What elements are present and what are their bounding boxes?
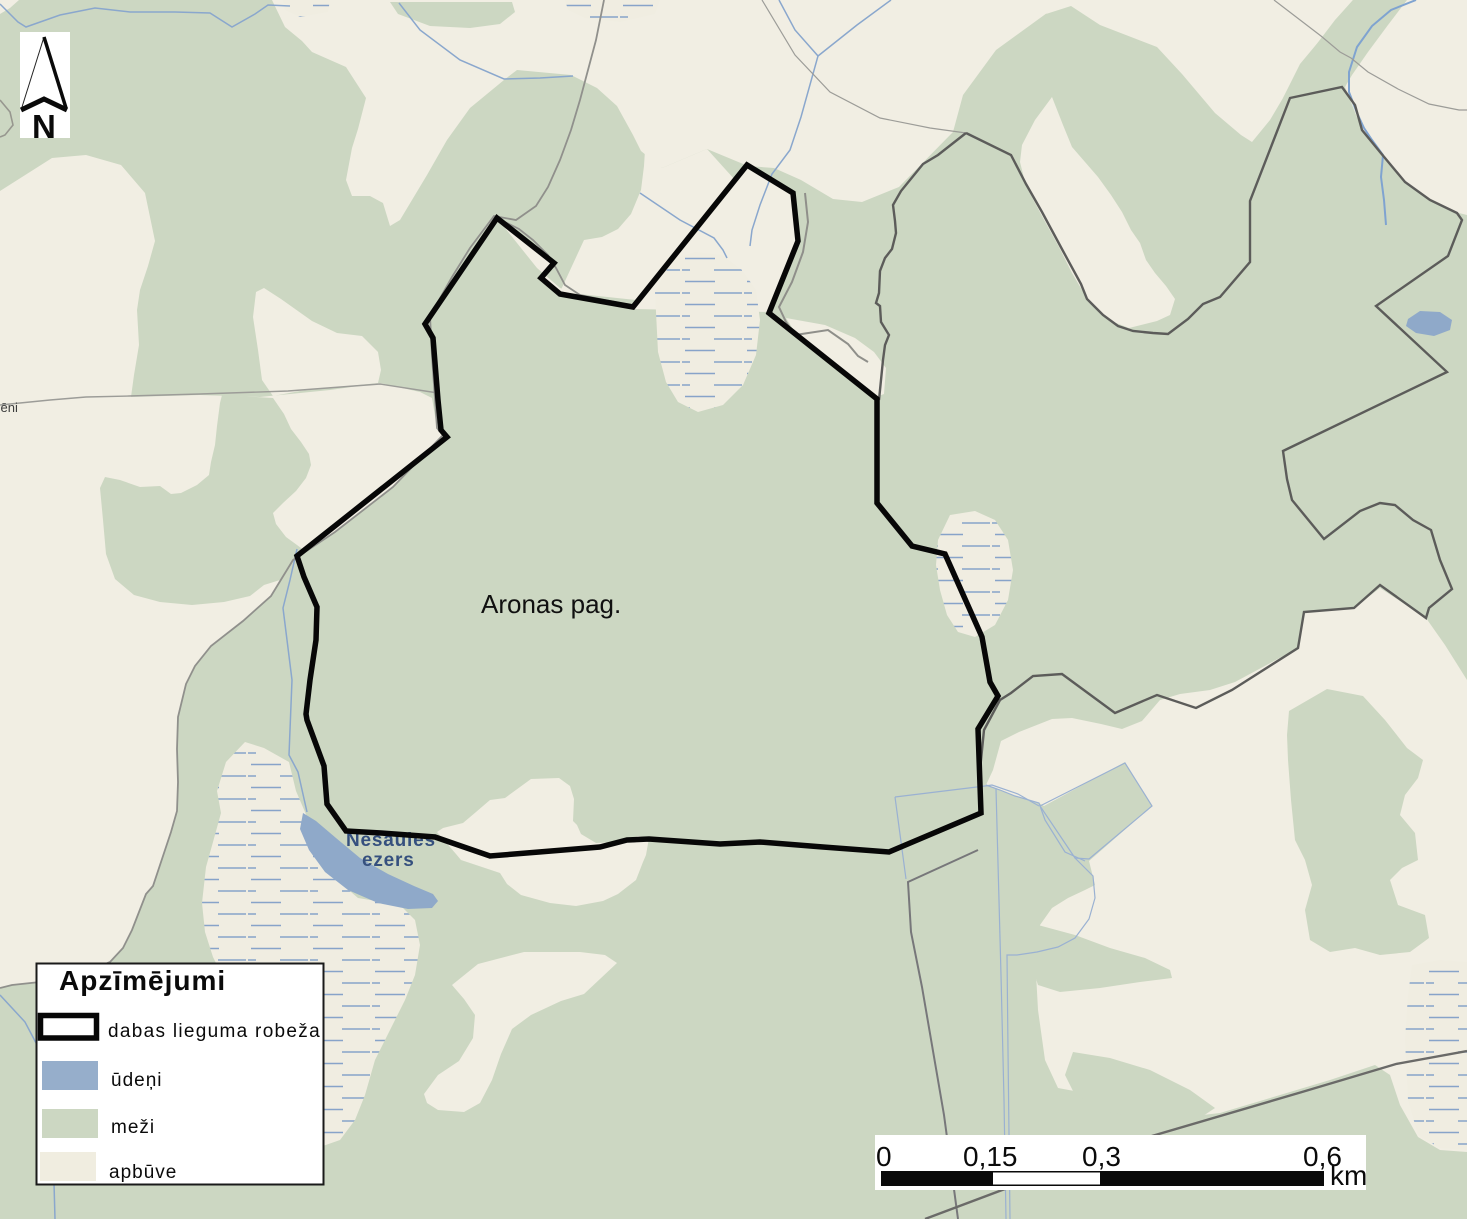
svg-text:meži: meži — [111, 1117, 155, 1138]
svg-text:Apzīmējumi: Apzīmējumi — [59, 965, 226, 996]
svg-text:Aronas pag.: Aronas pag. — [481, 589, 621, 619]
svg-text:sēni: sēni — [0, 400, 18, 415]
svg-text:ūdeņi: ūdeņi — [111, 1070, 163, 1091]
svg-text:apbūve: apbūve — [109, 1162, 177, 1183]
svg-text:km: km — [1330, 1160, 1367, 1191]
svg-text:N: N — [32, 108, 56, 145]
svg-text:0,15: 0,15 — [963, 1141, 1018, 1172]
svg-text:0,3: 0,3 — [1082, 1141, 1121, 1172]
svg-text:ezers: ezers — [362, 850, 415, 871]
svg-text:dabas lieguma robeža: dabas lieguma robeža — [108, 1021, 321, 1042]
svg-text:0: 0 — [876, 1141, 892, 1172]
